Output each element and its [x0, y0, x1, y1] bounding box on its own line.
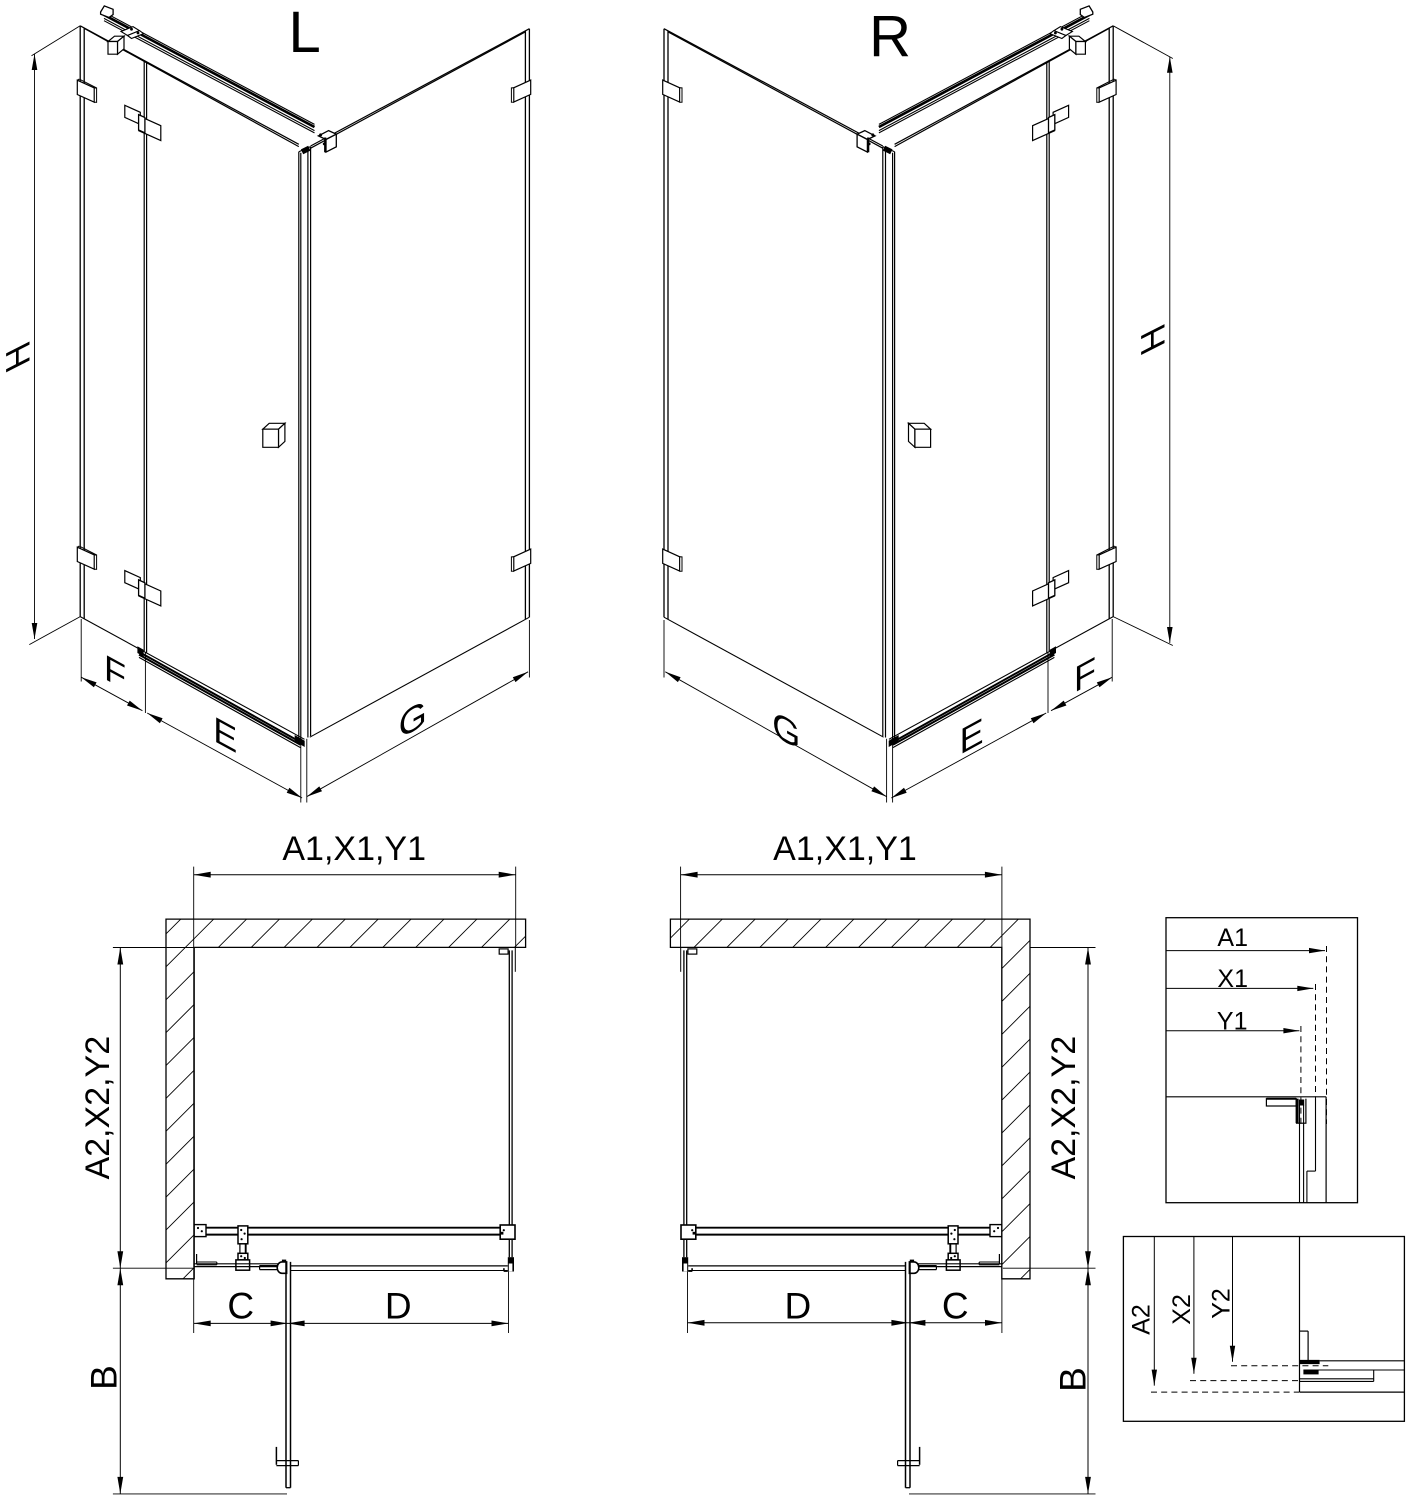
svg-text:B: B: [83, 1365, 124, 1390]
svg-text:B: B: [1053, 1367, 1094, 1392]
svg-text:Y2: Y2: [1208, 1288, 1236, 1319]
svg-text:X2: X2: [1168, 1294, 1196, 1325]
svg-text:A2: A2: [1128, 1304, 1156, 1335]
svg-text:L: L: [288, 0, 320, 65]
svg-text:A2,X2,Y2: A2,X2,Y2: [79, 1036, 117, 1180]
svg-text:R: R: [869, 4, 911, 69]
svg-text:A1: A1: [1217, 924, 1248, 952]
svg-text:A1,X1,Y1: A1,X1,Y1: [773, 830, 917, 868]
svg-text:A2,X2,Y2: A2,X2,Y2: [1045, 1036, 1083, 1180]
svg-text:C: C: [942, 1286, 969, 1327]
svg-text:C: C: [227, 1286, 254, 1327]
svg-text:X1: X1: [1217, 965, 1248, 993]
svg-text:D: D: [385, 1286, 412, 1327]
svg-text:A1,X1,Y1: A1,X1,Y1: [282, 830, 426, 868]
svg-text:Y1: Y1: [1217, 1008, 1248, 1036]
svg-text:D: D: [785, 1286, 812, 1327]
